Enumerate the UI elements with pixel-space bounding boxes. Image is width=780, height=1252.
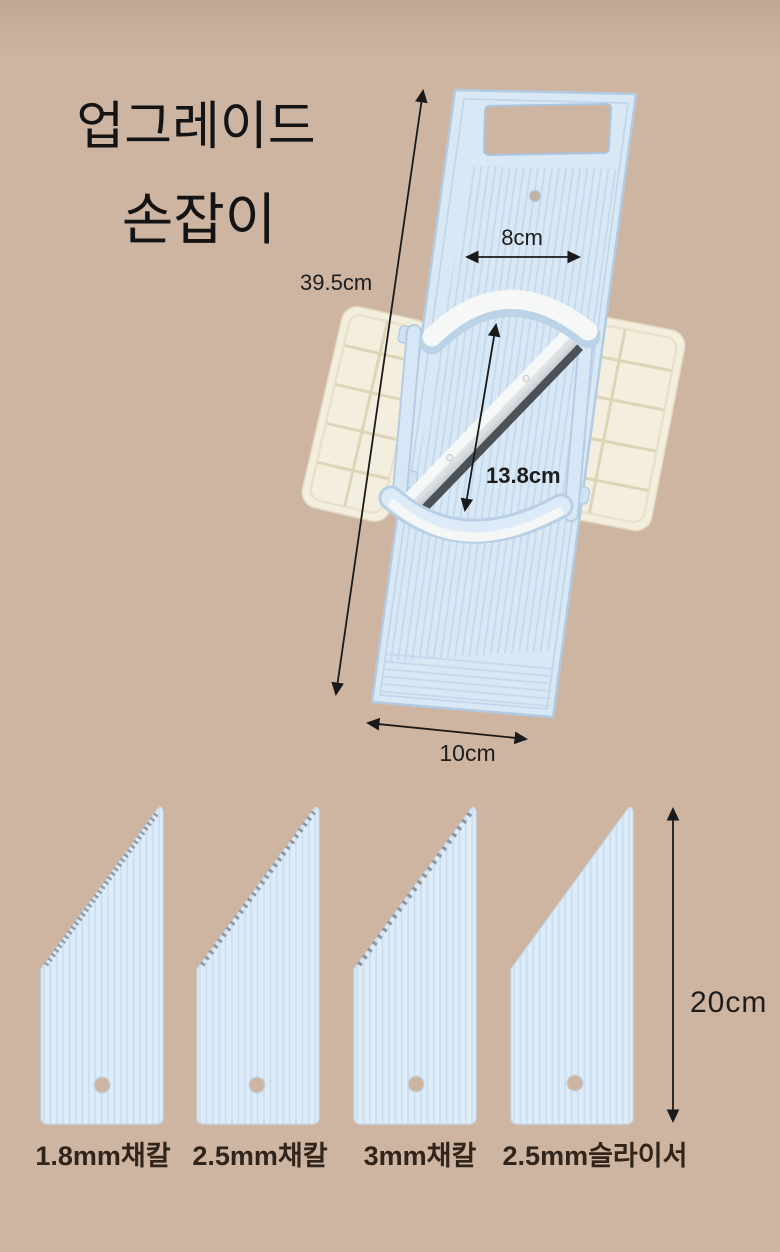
insert-label-1-8mm: 1.8mm채칼 <box>30 1134 176 1173</box>
insert-blade-slicer <box>511 807 633 1124</box>
handle-cutout <box>484 104 611 155</box>
product-detail-image: 업그레이드 손잡이 <box>0 0 780 1252</box>
insert-label-slicer: 2.5mm슬라이서 <box>494 1134 696 1173</box>
insert-blade-2_5mm <box>197 807 319 1124</box>
product-illustration <box>0 0 780 1252</box>
insert-hole <box>249 1077 265 1093</box>
screw-hole <box>530 191 541 202</box>
insert-blade-3mm <box>354 807 476 1124</box>
insert-hole <box>408 1076 424 1092</box>
blade-diagonal-dimension-label: 13.8cm <box>486 463 561 489</box>
top-width-dimension-label: 8cm <box>462 225 582 251</box>
insert-height-dimension-label: 20cm <box>690 986 767 1020</box>
insert-label-3mm: 3mm채칼 <box>352 1134 488 1173</box>
length-dimension-label: 39.5cm <box>300 270 372 296</box>
insert-hole <box>567 1075 583 1091</box>
insert-hole <box>94 1077 110 1093</box>
insert-blade-1_8mm <box>41 807 163 1124</box>
insert-label-2-5mm: 2.5mm채칼 <box>186 1134 334 1173</box>
bottom-width-arrow <box>368 723 526 739</box>
bottom-width-dimension-label: 10cm <box>405 740 530 767</box>
